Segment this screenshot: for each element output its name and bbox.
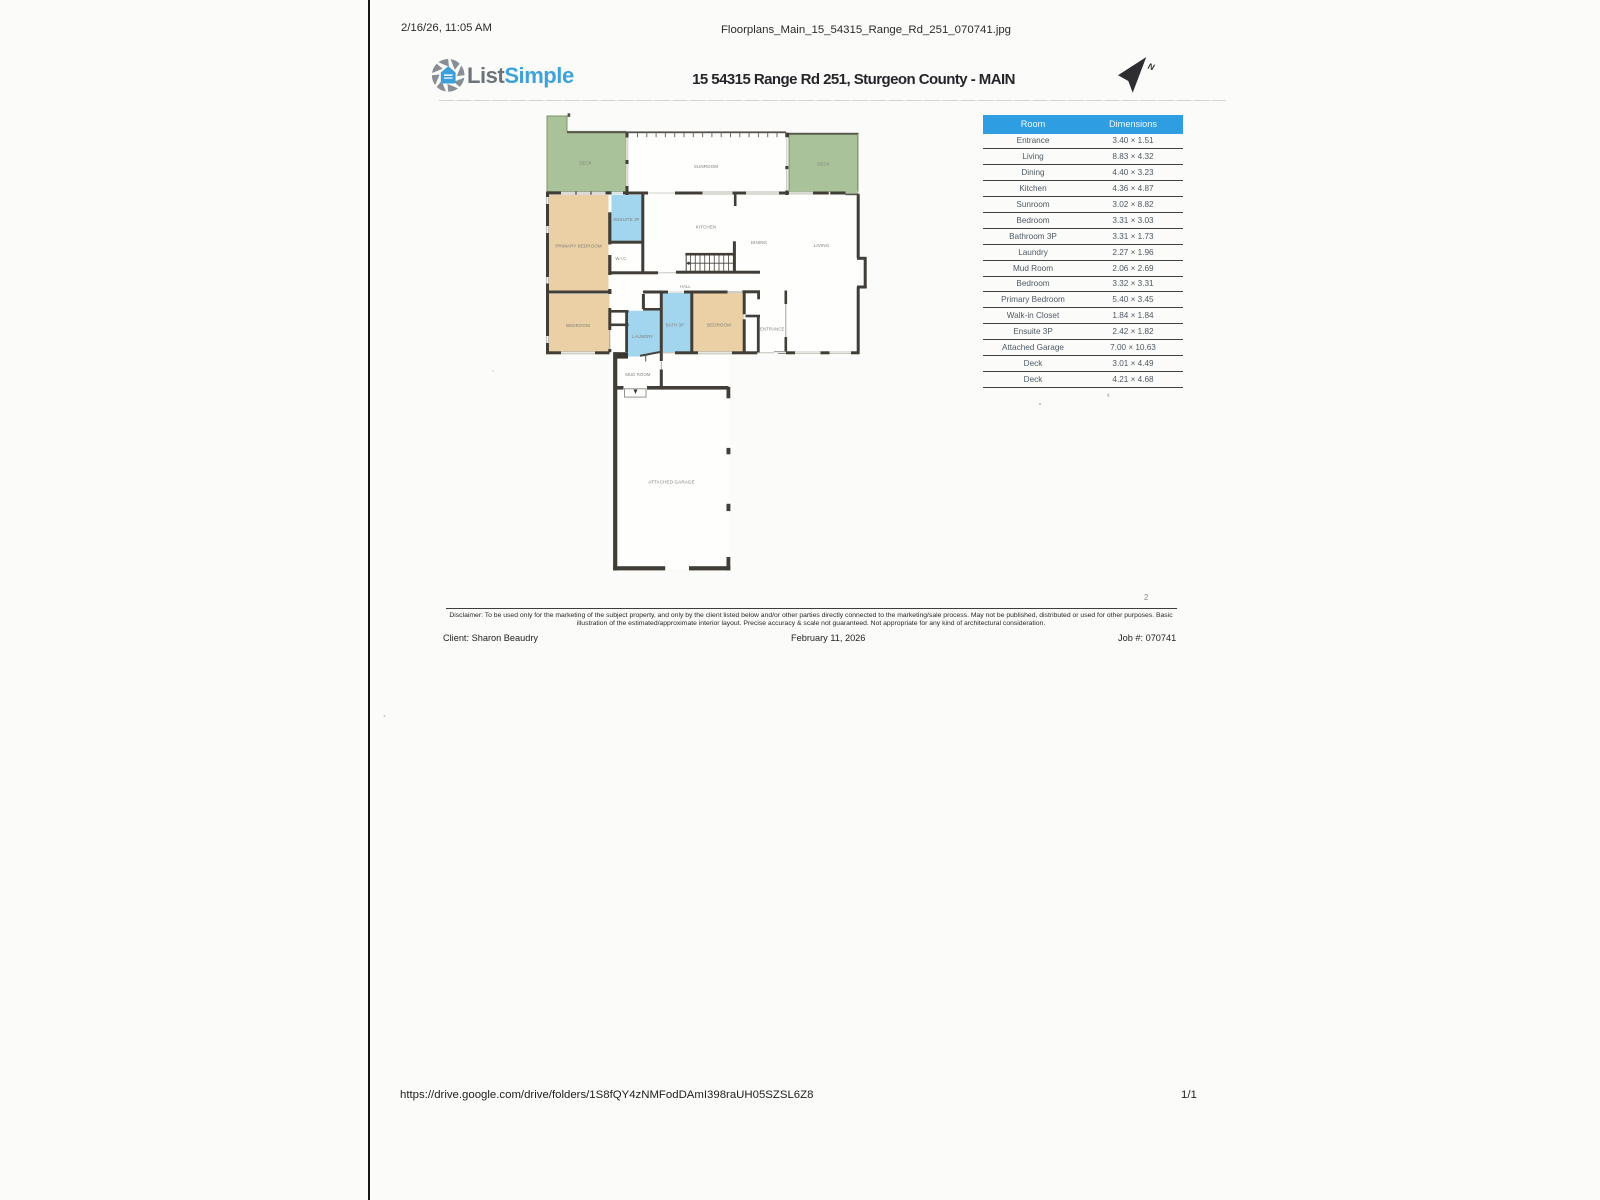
svg-text:BEDROOM: BEDROOM: [566, 323, 590, 328]
svg-text:DINING: DINING: [751, 240, 768, 245]
svg-text:LIVING: LIVING: [814, 243, 830, 248]
svg-text:N: N: [1147, 61, 1157, 73]
svg-text:DECK: DECK: [579, 161, 591, 166]
svg-text:DECK: DECK: [817, 162, 829, 167]
svg-text:SUNROOM: SUNROOM: [694, 164, 718, 169]
svg-text:ENSUITE 3P: ENSUITE 3P: [613, 217, 639, 222]
svg-text:ENTRANCE: ENTRANCE: [760, 327, 784, 332]
svg-text:LAUNDRY: LAUNDRY: [632, 334, 653, 339]
svg-text:BEDROOM: BEDROOM: [707, 322, 731, 327]
svg-text:BATH 3P: BATH 3P: [666, 322, 684, 327]
svg-text:HALL: HALL: [680, 284, 691, 289]
svg-text:2: 2: [1144, 593, 1149, 602]
svg-text:MUD ROOM: MUD ROOM: [625, 372, 650, 377]
svg-text:W.I.C.: W.I.C.: [615, 256, 627, 261]
svg-text:ATTACHED GARAGE: ATTACHED GARAGE: [648, 480, 695, 485]
svg-text:PRIMARY BEDROOM: PRIMARY BEDROOM: [555, 244, 601, 249]
svg-text:KITCHEN: KITCHEN: [696, 225, 716, 230]
